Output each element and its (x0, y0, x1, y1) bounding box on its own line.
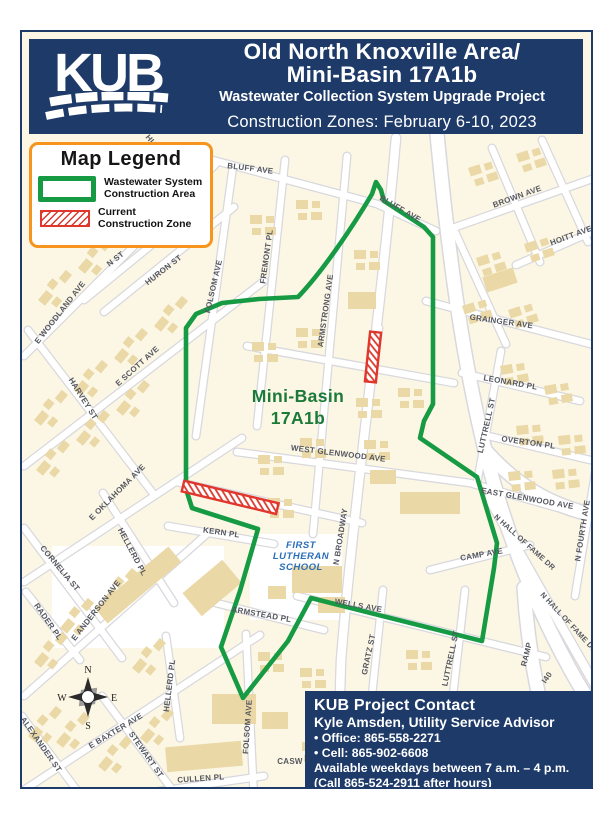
school-label-line2: LUTHERAN (273, 551, 330, 562)
construction-zones-banner: Construction Zones: February 6-10, 2023 (187, 113, 577, 132)
legend-title: Map Legend (38, 148, 204, 171)
green-outline-swatch-icon (38, 176, 96, 202)
legend-label-line: Construction Zone (98, 219, 191, 231)
page-subtitle: Wastewater Collection System Upgrade Pro… (187, 89, 577, 105)
school-label-line1: FIRST (286, 540, 317, 551)
compass-n: N (84, 665, 91, 676)
kub-logo-text: KUB (29, 51, 187, 97)
contact-availability: Available weekdays between 7 a.m. – 4 p.… (314, 761, 582, 775)
legend-label-line: Current (98, 207, 191, 219)
basin-label-line2: 17A1b (271, 408, 326, 428)
map-legend: Map Legend Wastewater System Constructio… (29, 142, 213, 248)
page-title-line1: Old North Knoxville Area/ (187, 41, 577, 64)
compass-e: E (111, 693, 117, 704)
page-title-line2: Mini-Basin 17A1b (187, 64, 577, 87)
contact-after-hours: (Call 865-524-2911 after hours) (314, 776, 582, 790)
contact-name-role: Kyle Amsden, Utility Service Advisor (314, 715, 582, 730)
header-titles: Old North Knoxville Area/ Mini-Basin 17A… (187, 41, 583, 132)
legend-item-current-zone: Current Construction Zone (38, 207, 204, 230)
street-label: CASW (277, 757, 303, 766)
project-contact-box: KUB Project Contact Kyle Amsden, Utility… (305, 691, 591, 787)
compass-s: S (85, 721, 91, 732)
contact-title: KUB Project Contact (314, 697, 582, 715)
contact-office-phone: • Office: 865-558-2271 (314, 731, 582, 745)
legend-label-line: Construction Area (104, 189, 202, 201)
basin-label-line1: Mini-Basin (252, 386, 344, 406)
legend-item-construction-area: Wastewater System Construction Area (38, 176, 204, 202)
compass-w: W (57, 693, 67, 704)
contact-cell-phone: • Cell: 865-902-6608 (314, 746, 582, 760)
school-label-line3: SCHOOL (279, 562, 323, 573)
legend-item-label: Wastewater System Construction Area (104, 177, 202, 200)
kub-logo: KUB (29, 51, 187, 123)
header-banner: KUB Old North Knoxville Area/ Mini-Basin… (29, 39, 583, 134)
red-hatched-swatch-icon (40, 210, 90, 227)
legend-item-label: Current Construction Zone (98, 207, 191, 230)
